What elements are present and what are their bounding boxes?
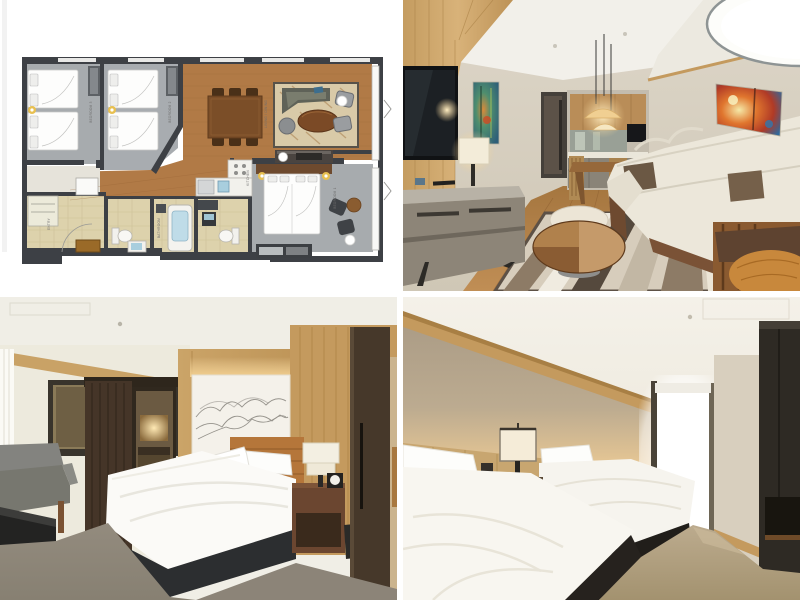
lamp-shade [303,443,339,463]
floor-plan-image[interactable]: BEDROOM 3 BEDROOM 2 LIVING / DINING KITC… [0,0,397,291]
master-bedroom-scene [0,297,397,600]
open-shelf [296,513,341,547]
door-handle [360,423,363,509]
ceiling-light [553,44,557,48]
twin-bedroom-photo[interactable] [403,297,800,600]
blue-box [415,178,425,185]
label-entry: ENTRY [47,217,51,230]
hallway-door [541,92,567,178]
dining-table [208,88,262,146]
floor-plan-drawing: BEDROOM 3 BEDROOM 2 LIVING / DINING KITC… [0,0,397,291]
brown-pillow [728,170,765,201]
lamp-shade [500,429,536,461]
wall-outlet [481,463,493,472]
media-niche [765,497,800,539]
page-edge-strip [2,0,7,252]
shelf [765,535,800,540]
living-room-scene [403,0,800,291]
master-bedroom-photo[interactable] [0,297,397,600]
label-kitchen: KITCHEN [246,170,250,186]
living-room-photo[interactable] [403,0,800,291]
backlit-mirror [140,415,168,441]
sliding-door-right [350,327,397,597]
vanity-counter [138,447,170,455]
label-bedroom2: BEDROOM 2 [168,101,172,122]
sprinkler [688,315,692,319]
label-living-dining: LIVING / DINING [264,100,268,128]
label-bedroom3: BEDROOM 3 [89,101,93,122]
wardrobe [759,321,800,589]
twin-bedroom-scene [403,297,800,600]
sprinkler [118,322,122,326]
kitchen-tv [627,124,646,142]
photo-collage: BEDROOM 3 BEDROOM 2 LIVING / DINING KITC… [0,0,800,600]
wood-chair-hint [392,447,397,507]
armchair [713,222,800,291]
label-bathroom: BATHROOM [157,218,161,238]
lamp-stem [318,475,323,487]
label-bedroom1: BEDROOM 1 [333,187,337,208]
table-lamp [459,138,489,164]
ceiling-light [623,32,627,36]
